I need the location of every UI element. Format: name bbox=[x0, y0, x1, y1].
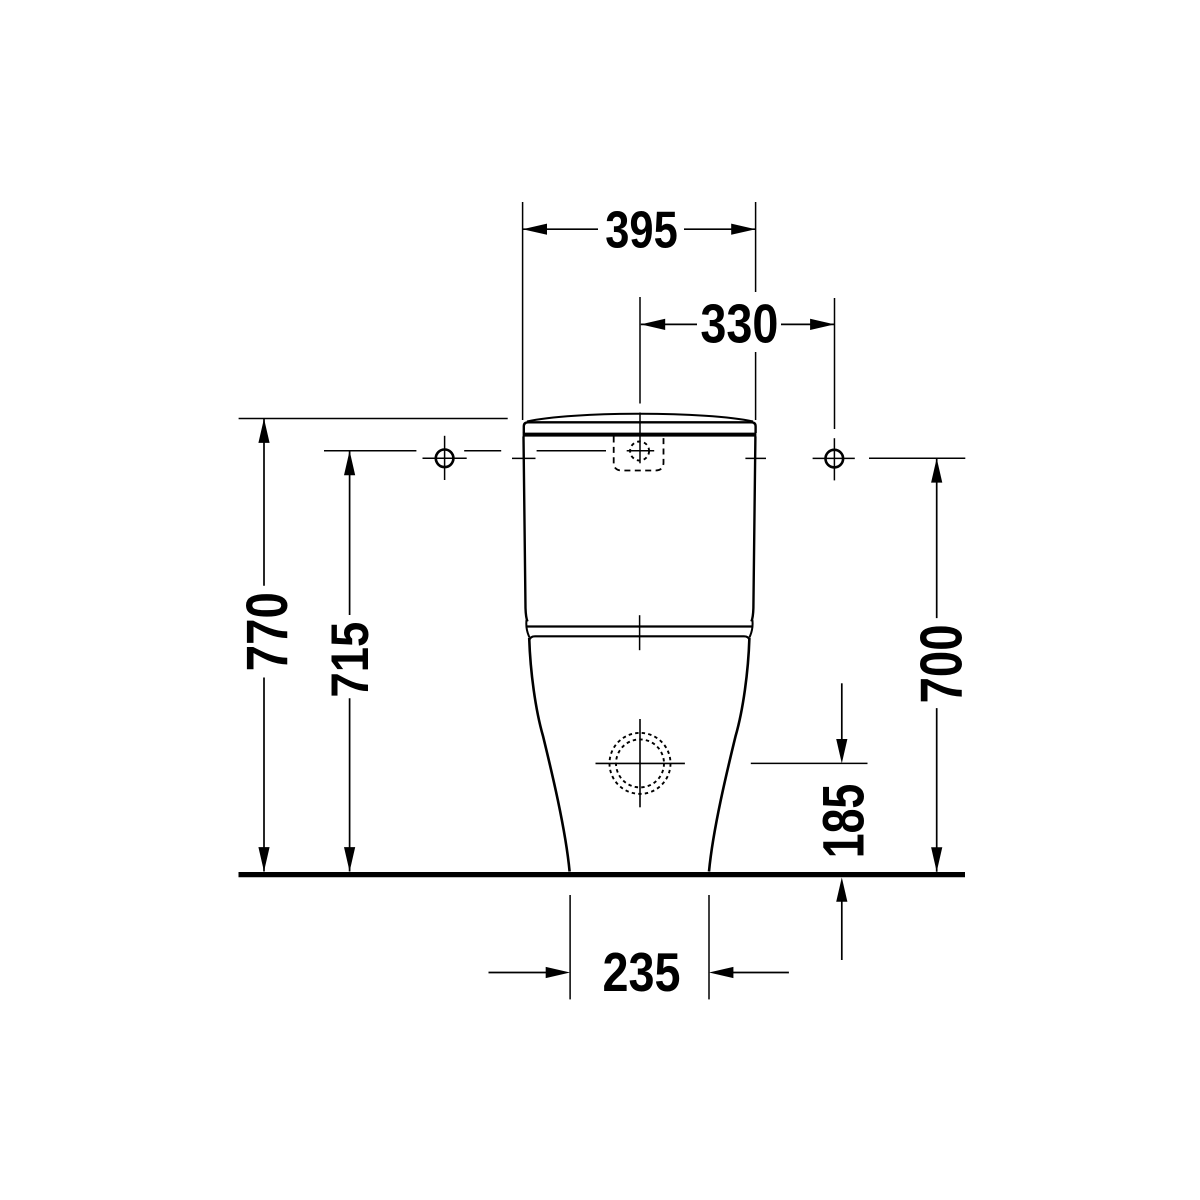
svg-text:395: 395 bbox=[605, 202, 678, 260]
svg-text:770: 770 bbox=[235, 592, 300, 671]
svg-text:235: 235 bbox=[603, 941, 681, 1003]
svg-text:715: 715 bbox=[321, 622, 380, 698]
svg-text:185: 185 bbox=[812, 784, 877, 859]
svg-text:700: 700 bbox=[909, 624, 975, 703]
svg-text:330: 330 bbox=[700, 293, 778, 355]
